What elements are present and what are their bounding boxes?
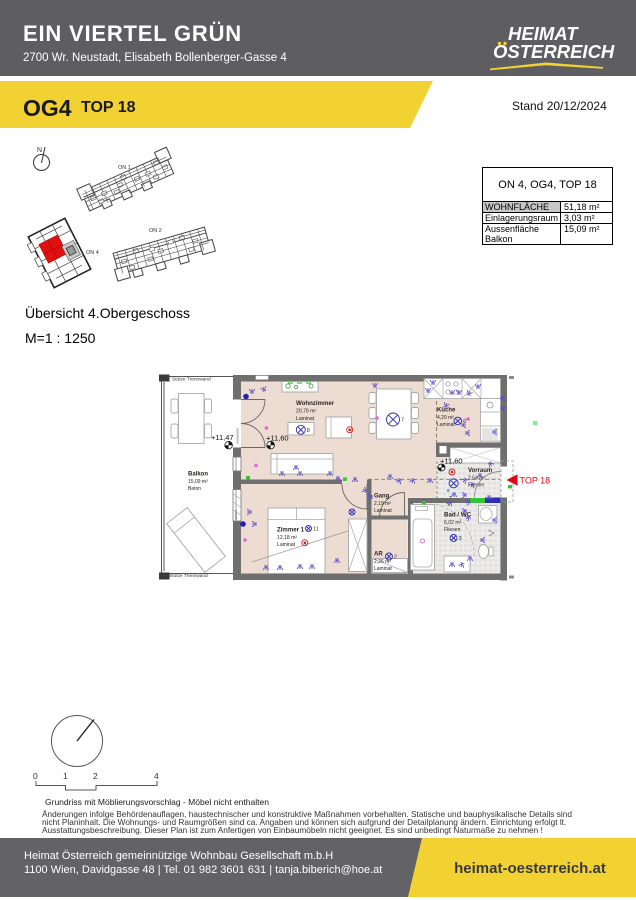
svg-text:Laminat: Laminat [437, 422, 455, 428]
svg-text:Laminat: Laminat [277, 542, 296, 548]
svg-text:7: 7 [401, 418, 404, 424]
svg-text:ON 4: ON 4 [86, 250, 99, 256]
svg-text:Stütze Trennwand: Stütze Trennwand [169, 573, 208, 579]
svg-text:4,20 m²: 4,20 m² [437, 415, 454, 421]
svg-text:2: 2 [394, 555, 397, 561]
svg-text:OSTERREICH: OSTERREICH [493, 41, 615, 62]
svg-text:Stütze Trennwand: Stütze Trennwand [172, 377, 211, 383]
svg-text:Wohnzimmer: Wohnzimmer [296, 400, 335, 407]
svg-text:8: 8 [307, 428, 310, 434]
svg-text:12,18 m²: 12,18 m² [277, 535, 297, 541]
svg-text:15,09 m²: 15,09 m² [188, 479, 208, 485]
svg-text:Beton: Beton [188, 486, 201, 492]
svg-text:11: 11 [313, 527, 319, 533]
svg-text:Zimmer 1: Zimmer 1 [277, 527, 305, 534]
svg-text:2: 2 [93, 771, 98, 781]
svg-text:1: 1 [63, 771, 68, 781]
svg-text:ON 2: ON 2 [149, 228, 162, 234]
svg-text:Fliesen: Fliesen [444, 527, 461, 533]
svg-text:xxxxxxxx: xxxxxxxx [235, 428, 240, 444]
svg-text:3: 3 [459, 536, 462, 542]
svg-text:6,02 m²: 6,02 m² [444, 520, 462, 526]
svg-text:20,79 m²: 20,79 m² [296, 409, 316, 415]
svg-text:ON 1: ON 1 [118, 165, 131, 171]
svg-text:AR: AR [374, 552, 383, 558]
svg-text:2,19 m²: 2,19 m² [374, 501, 391, 507]
svg-text:Gang: Gang [374, 494, 390, 500]
svg-text:+11,60: +11,60 [266, 434, 289, 443]
svg-text:Laminat: Laminat [374, 508, 392, 514]
svg-text:Balkon: Balkon [188, 472, 208, 478]
svg-text:N: N [37, 147, 42, 154]
svg-text:0: 0 [33, 771, 38, 781]
svg-text:Laminat: Laminat [374, 566, 392, 572]
svg-text:Laminat: Laminat [296, 416, 315, 422]
svg-text:Vorraum: Vorraum [468, 468, 492, 474]
svg-text:+11,47: +11,47 [211, 433, 234, 442]
svg-text:TOP 18: TOP 18 [520, 476, 551, 486]
svg-text:4: 4 [154, 771, 159, 781]
svg-text:Küche: Küche [437, 408, 456, 414]
